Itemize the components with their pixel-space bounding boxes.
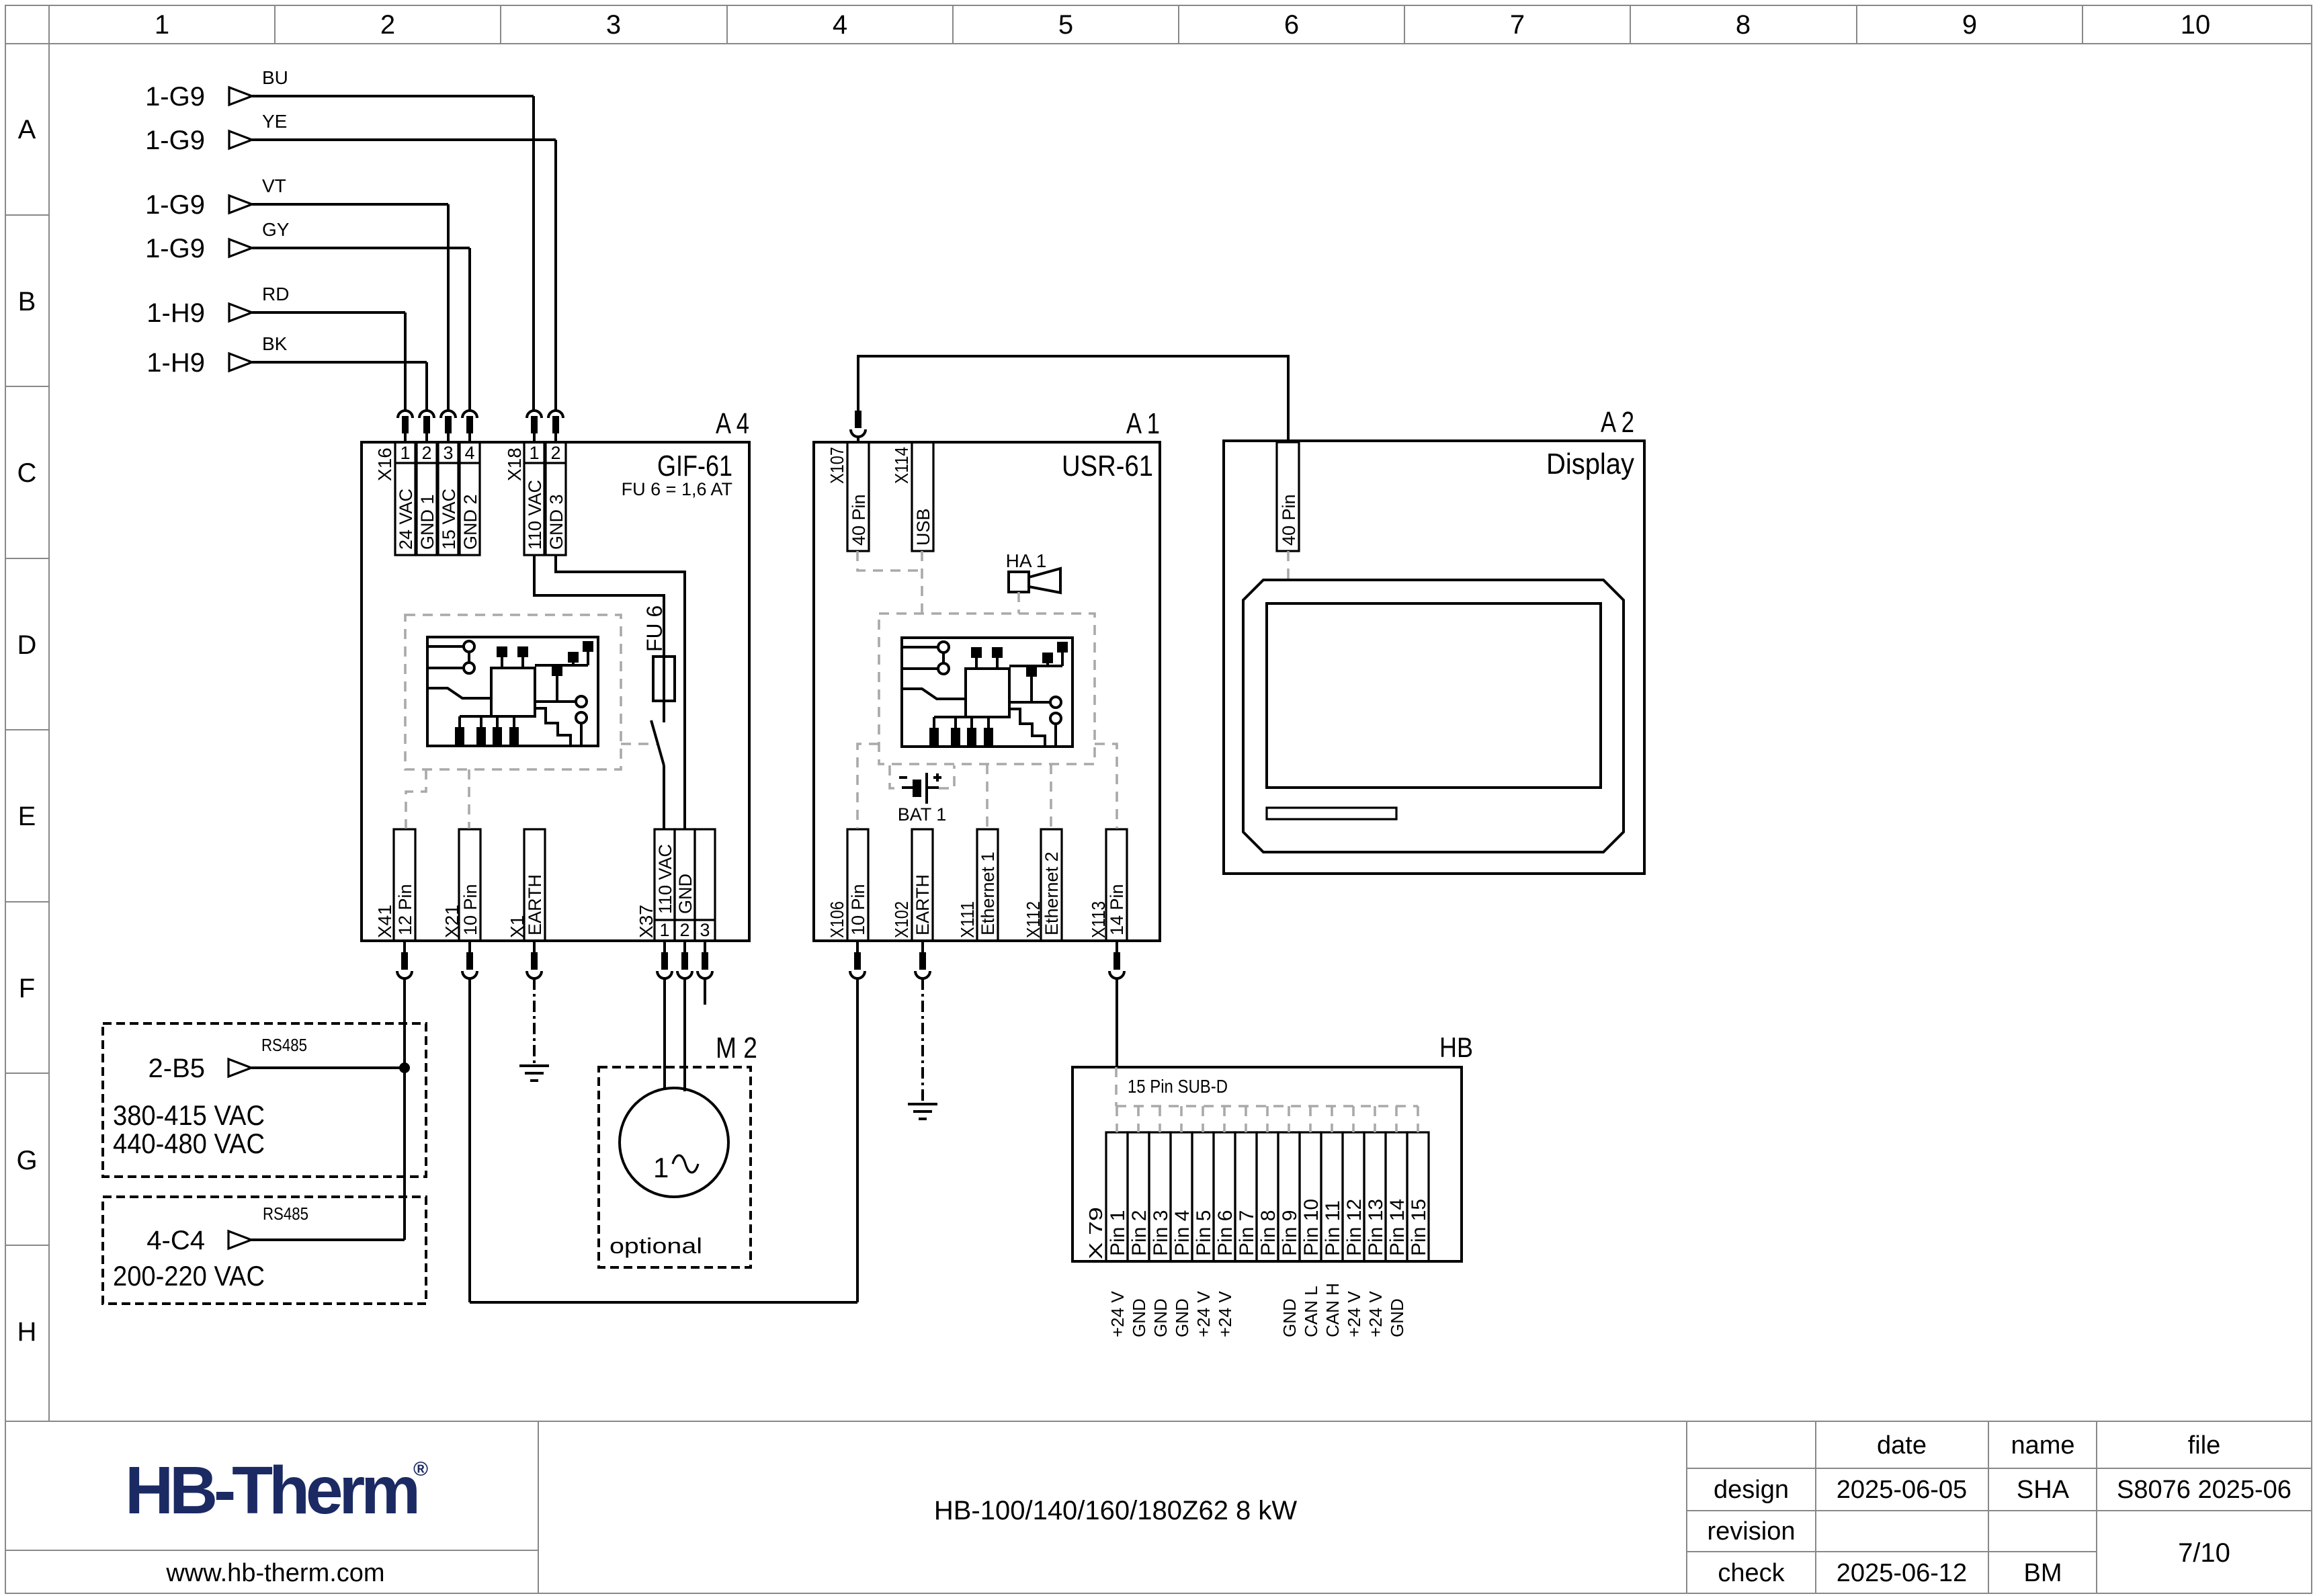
svg-text:GIF-61: GIF-61: [657, 450, 732, 482]
svg-text:X106: X106: [827, 901, 847, 938]
svg-text:GY: GY: [262, 219, 290, 240]
svg-text:RS485: RS485: [261, 1035, 307, 1055]
svg-text:A 1: A 1: [1126, 407, 1160, 440]
svg-text:14 Pin: 14 Pin: [1107, 884, 1127, 935]
svg-text:Pin 12: Pin 12: [1343, 1199, 1365, 1256]
svg-text:EARTH: EARTH: [913, 874, 933, 935]
svg-text:1: 1: [155, 10, 169, 40]
svg-text:revision: revision: [1708, 1517, 1796, 1546]
svg-text:S8076 2025-06: S8076 2025-06: [2117, 1476, 2291, 1504]
svg-text:SHA: SHA: [2017, 1476, 2070, 1504]
svg-text:10 Pin: 10 Pin: [460, 884, 480, 935]
svg-text:10: 10: [2181, 10, 2211, 40]
svg-text:date: date: [1877, 1431, 1927, 1460]
svg-text:M 2: M 2: [716, 1032, 757, 1064]
svg-text:9: 9: [1962, 10, 1977, 40]
svg-text:A 4: A 4: [716, 407, 749, 440]
svg-text:110 VAC: 110 VAC: [525, 480, 545, 550]
svg-text:+24 V: +24 V: [1215, 1291, 1235, 1337]
svg-text:+24 V: +24 V: [1193, 1291, 1214, 1337]
svg-text:6: 6: [1284, 10, 1299, 40]
svg-text:RS485: RS485: [263, 1204, 308, 1224]
svg-text:BAT 1: BAT 1: [898, 804, 947, 825]
svg-text:Ethernet 2: Ethernet 2: [1042, 851, 1062, 935]
svg-text:2025-06-05: 2025-06-05: [1837, 1476, 1967, 1504]
svg-text:USR-61: USR-61: [1062, 450, 1153, 482]
svg-text:24 VAC: 24 VAC: [396, 489, 416, 550]
svg-text:name: name: [2011, 1431, 2074, 1460]
svg-text:Pin 8: Pin 8: [1257, 1210, 1279, 1256]
svg-text:2: 2: [550, 443, 560, 463]
svg-text:C: C: [17, 458, 37, 488]
svg-text:X41: X41: [374, 905, 395, 938]
svg-text:8: 8: [1736, 10, 1751, 40]
svg-text:X1: X1: [507, 915, 528, 938]
svg-text:Ethernet 1: Ethernet 1: [978, 851, 998, 935]
svg-text:CAN H: CAN H: [1322, 1283, 1343, 1337]
svg-text:FU 6 = 1,6 AT: FU 6 = 1,6 AT: [622, 479, 732, 499]
svg-text:VT: VT: [262, 175, 286, 196]
svg-text:Pin 5: Pin 5: [1193, 1210, 1215, 1256]
svg-text:BK: BK: [262, 333, 288, 354]
svg-text:X114: X114: [891, 447, 912, 484]
svg-text:A: A: [18, 115, 36, 144]
svg-text:GND: GND: [1387, 1298, 1407, 1337]
svg-text:Pin 1: Pin 1: [1107, 1210, 1129, 1256]
svg-text:CAN L: CAN L: [1301, 1286, 1321, 1337]
svg-text:15 VAC: 15 VAC: [439, 489, 459, 550]
svg-text:2025-06-12: 2025-06-12: [1837, 1559, 1967, 1587]
svg-text:E: E: [18, 802, 36, 831]
svg-text:YE: YE: [262, 111, 287, 132]
svg-text:Pin 4: Pin 4: [1171, 1210, 1193, 1256]
svg-text:GND: GND: [1129, 1298, 1149, 1337]
svg-text:GND: GND: [1150, 1298, 1171, 1337]
svg-text:Pin 2: Pin 2: [1128, 1210, 1150, 1256]
svg-text:1-G9: 1-G9: [145, 190, 205, 220]
svg-text:X16: X16: [374, 448, 395, 481]
svg-text:FU 6: FU 6: [642, 605, 667, 652]
svg-text:Pin 14: Pin 14: [1386, 1199, 1408, 1256]
svg-text:4-C4: 4-C4: [146, 1226, 205, 1255]
svg-text:7/10: 7/10: [2178, 1538, 2230, 1568]
svg-text:7: 7: [1510, 10, 1525, 40]
svg-text:EARTH: EARTH: [525, 874, 545, 935]
svg-text:Pin 3: Pin 3: [1150, 1210, 1172, 1256]
svg-text:GND 3: GND 3: [546, 494, 566, 550]
svg-text:4: 4: [833, 10, 847, 40]
svg-text:BM: BM: [2024, 1559, 2062, 1587]
svg-text:3: 3: [700, 920, 710, 940]
svg-text:10 Pin: 10 Pin: [848, 884, 868, 935]
svg-text:check: check: [1718, 1559, 1785, 1587]
svg-text:X112: X112: [1023, 901, 1044, 938]
svg-text:Pin 15: Pin 15: [1408, 1199, 1430, 1256]
svg-text:X113: X113: [1088, 901, 1109, 938]
svg-text:X 79: X 79: [1085, 1207, 1106, 1259]
svg-text:D: D: [17, 630, 37, 660]
svg-text:1: 1: [659, 920, 669, 940]
svg-text:GND 2: GND 2: [460, 494, 480, 550]
svg-text:Pin 7: Pin 7: [1236, 1210, 1258, 1256]
svg-text:USB: USB: [913, 508, 933, 546]
svg-text:Pin 9: Pin 9: [1279, 1210, 1301, 1256]
svg-text:40 Pin: 40 Pin: [1279, 494, 1299, 546]
svg-text:5: 5: [1058, 10, 1073, 40]
svg-text:+24 V: +24 V: [1365, 1291, 1386, 1337]
svg-text:Pin 11: Pin 11: [1322, 1200, 1344, 1256]
svg-text:2: 2: [421, 443, 431, 463]
svg-text:1-G9: 1-G9: [145, 126, 205, 155]
svg-text:X111: X111: [957, 901, 978, 938]
svg-text:X107: X107: [827, 447, 847, 484]
svg-text:B: B: [18, 287, 36, 317]
svg-text:GND: GND: [1172, 1298, 1192, 1337]
svg-text:1-H9: 1-H9: [146, 298, 205, 328]
svg-text:3: 3: [606, 10, 621, 40]
svg-text:200-220 VAC: 200-220 VAC: [113, 1260, 265, 1292]
svg-text:HB: HB: [1439, 1032, 1473, 1063]
svg-text:3: 3: [443, 443, 453, 463]
svg-text:Pin 13: Pin 13: [1365, 1199, 1387, 1256]
svg-text:www.hb-therm.com: www.hb-therm.com: [165, 1559, 384, 1587]
svg-text:A 2: A 2: [1601, 406, 1634, 439]
svg-text:X102: X102: [891, 901, 912, 938]
svg-text:1: 1: [400, 443, 410, 463]
svg-text:+24 V: +24 V: [1107, 1291, 1128, 1337]
svg-text:HB-100/140/160/180Z62 8 kW: HB-100/140/160/180Z62 8 kW: [934, 1496, 1298, 1525]
svg-text:HA 1: HA 1: [1006, 550, 1047, 571]
svg-text:1-G9: 1-G9: [145, 82, 205, 112]
svg-text:Pin 6: Pin 6: [1214, 1210, 1236, 1256]
svg-text:110 VAC: 110 VAC: [655, 844, 675, 914]
svg-text:12 Pin: 12 Pin: [395, 884, 415, 935]
svg-text:1: 1: [653, 1152, 669, 1183]
svg-text:2: 2: [380, 10, 395, 40]
svg-text:H: H: [17, 1317, 37, 1347]
svg-text:1: 1: [529, 443, 539, 463]
svg-text:®: ®: [413, 1458, 428, 1480]
svg-text:X18: X18: [504, 448, 525, 481]
svg-text:15 Pin SUB-D: 15 Pin SUB-D: [1128, 1076, 1228, 1097]
svg-text:+24 V: +24 V: [1344, 1291, 1364, 1337]
svg-text:HB-Therm: HB-Therm: [125, 1453, 421, 1528]
svg-text:BU: BU: [262, 67, 288, 88]
svg-text:GND: GND: [1279, 1298, 1300, 1337]
svg-text:2: 2: [679, 920, 689, 940]
svg-text:design: design: [1714, 1476, 1789, 1504]
svg-text:X21: X21: [441, 905, 462, 938]
svg-text:Display: Display: [1546, 448, 1634, 480]
svg-text:file: file: [2188, 1431, 2221, 1460]
svg-text:X37: X37: [636, 905, 657, 938]
svg-text:G: G: [16, 1146, 37, 1175]
svg-text:Pin 10: Pin 10: [1300, 1199, 1322, 1256]
svg-text:GND 1: GND 1: [417, 494, 437, 550]
svg-text:1-H9: 1-H9: [146, 348, 205, 378]
svg-text:380-415 VAC: 380-415 VAC: [113, 1099, 265, 1131]
svg-text:2-B5: 2-B5: [149, 1054, 206, 1083]
svg-text:F: F: [19, 974, 35, 1003]
svg-text:RD: RD: [262, 284, 289, 304]
svg-text:4: 4: [464, 443, 474, 463]
svg-text:440-480 VAC: 440-480 VAC: [113, 1128, 265, 1159]
svg-text:GND: GND: [675, 874, 696, 914]
svg-text:optional: optional: [609, 1234, 702, 1258]
svg-text:40 Pin: 40 Pin: [849, 494, 869, 546]
svg-text:1-G9: 1-G9: [145, 234, 205, 263]
